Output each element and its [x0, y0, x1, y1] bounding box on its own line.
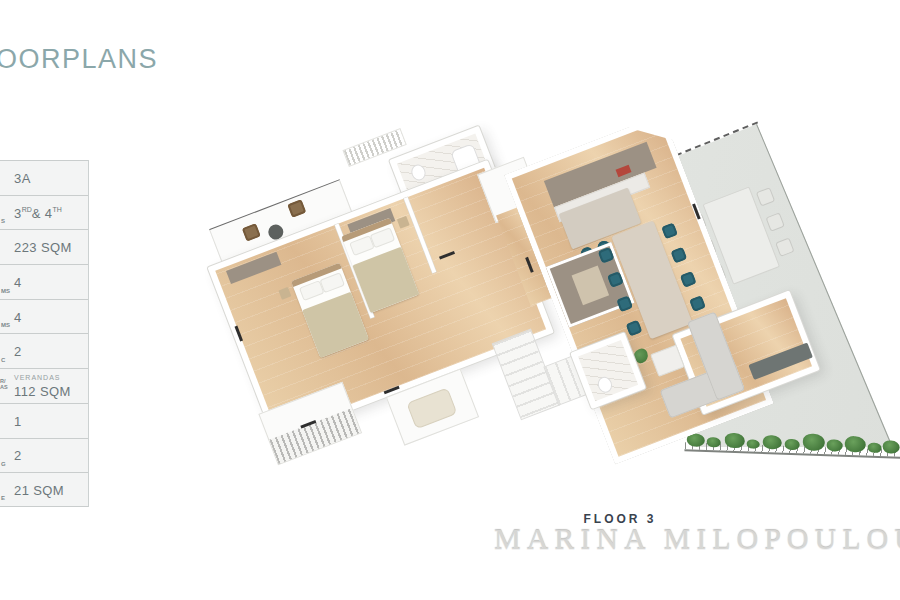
floors-sup2: TH: [52, 206, 61, 213]
plant-icon: [882, 440, 899, 454]
spec-row-storage: E 21 SQM: [0, 472, 88, 507]
spec-row-wc: C 2: [0, 333, 88, 368]
bedrooms-value: 4: [14, 274, 22, 289]
spec-row-8: 1: [0, 403, 88, 438]
wc-value: 2: [14, 344, 22, 359]
plant-icon: [845, 436, 867, 453]
closet-island: [572, 265, 610, 305]
unit-value: 3A: [14, 170, 31, 185]
floors-num: 3: [14, 205, 22, 220]
area-value: 223 SQM: [14, 240, 72, 255]
toilet: [596, 375, 615, 395]
armchair-icon: [287, 199, 306, 217]
plant-icon: [868, 443, 882, 453]
plant-icon: [803, 433, 826, 451]
armchair-icon: [242, 223, 261, 241]
label-fragment: C: [1, 357, 5, 363]
spec-row-bedrooms: MS 4: [0, 264, 88, 299]
row9-value: 2: [14, 448, 22, 463]
balcony-grate: [269, 408, 360, 464]
plant-icon: [827, 439, 843, 452]
plant-icon: [785, 439, 800, 451]
verandas-sublabel: VERANDAS: [14, 374, 61, 381]
bathrooms-value: 4: [14, 309, 22, 324]
spec-row-9: G 2: [0, 438, 88, 473]
spec-table: 3A S 3RD& 4TH 223 SQM MS 4 MS 4 C 2 R/AS…: [0, 160, 89, 507]
label-fragment: R/AS: [0, 378, 8, 390]
storage-value: 21 SQM: [14, 482, 64, 497]
frag-bottom: AS: [0, 384, 8, 390]
floors-sup: RD: [22, 206, 32, 213]
toilet: [409, 163, 428, 183]
lounger: [406, 387, 457, 429]
label-fragment: G: [1, 461, 6, 467]
plant-icon: [763, 435, 782, 450]
plant-icon: [747, 439, 760, 448]
label-fragment: S: [1, 218, 5, 224]
spec-row-area: 223 SQM: [0, 229, 88, 264]
floors-num2: & 4: [32, 205, 53, 220]
label-fragment: E: [1, 495, 5, 501]
verandas-value: 112 SQM: [14, 384, 71, 399]
spec-row-verandas: R/AS VERANDAS 112 SQM: [0, 368, 88, 403]
spec-row-unit: 3A: [0, 160, 88, 195]
building: [113, 0, 867, 600]
floorplan-render: [140, 75, 900, 495]
floors-value: 3RD& 4TH: [14, 205, 62, 220]
spec-row-bathrooms: MS 4: [0, 299, 88, 334]
page-title: OORPLANS: [0, 44, 158, 75]
label-fragment: MS: [1, 322, 10, 328]
row8-value: 1: [14, 413, 22, 428]
label-fragment: MS: [1, 288, 10, 294]
watermark: MARINA MILOPOULOU: [494, 522, 900, 556]
spec-row-floors: S 3RD& 4TH: [0, 195, 88, 230]
